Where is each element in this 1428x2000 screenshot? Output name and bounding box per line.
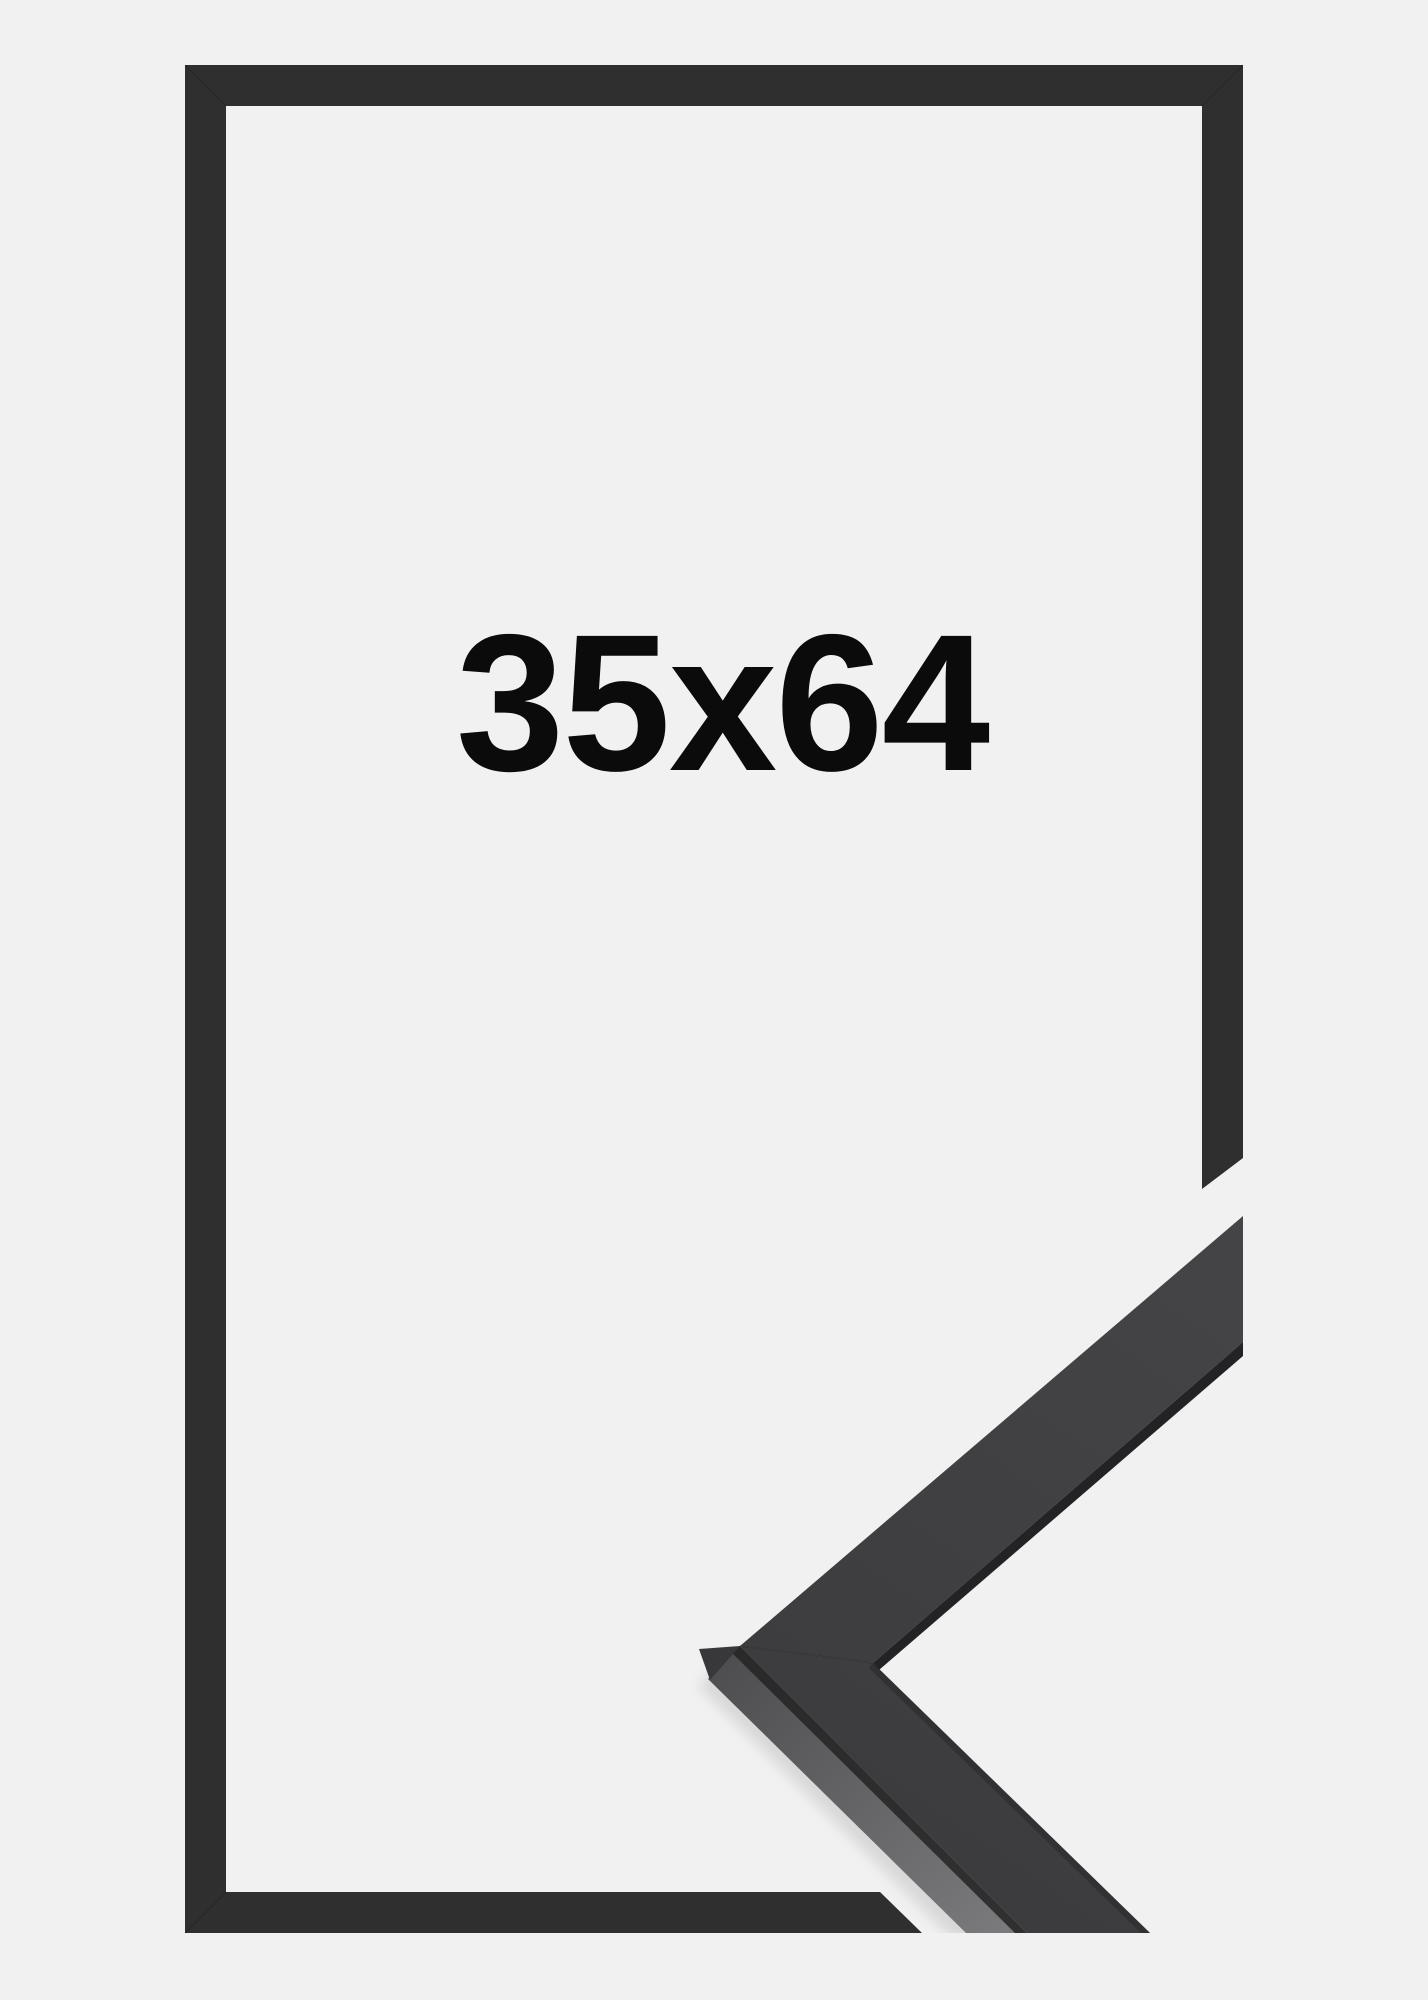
product-image: 35x64	[0, 0, 1428, 2000]
frame-product-graphic: 35x64	[0, 0, 1428, 2000]
size-label: 35x64	[456, 594, 990, 812]
